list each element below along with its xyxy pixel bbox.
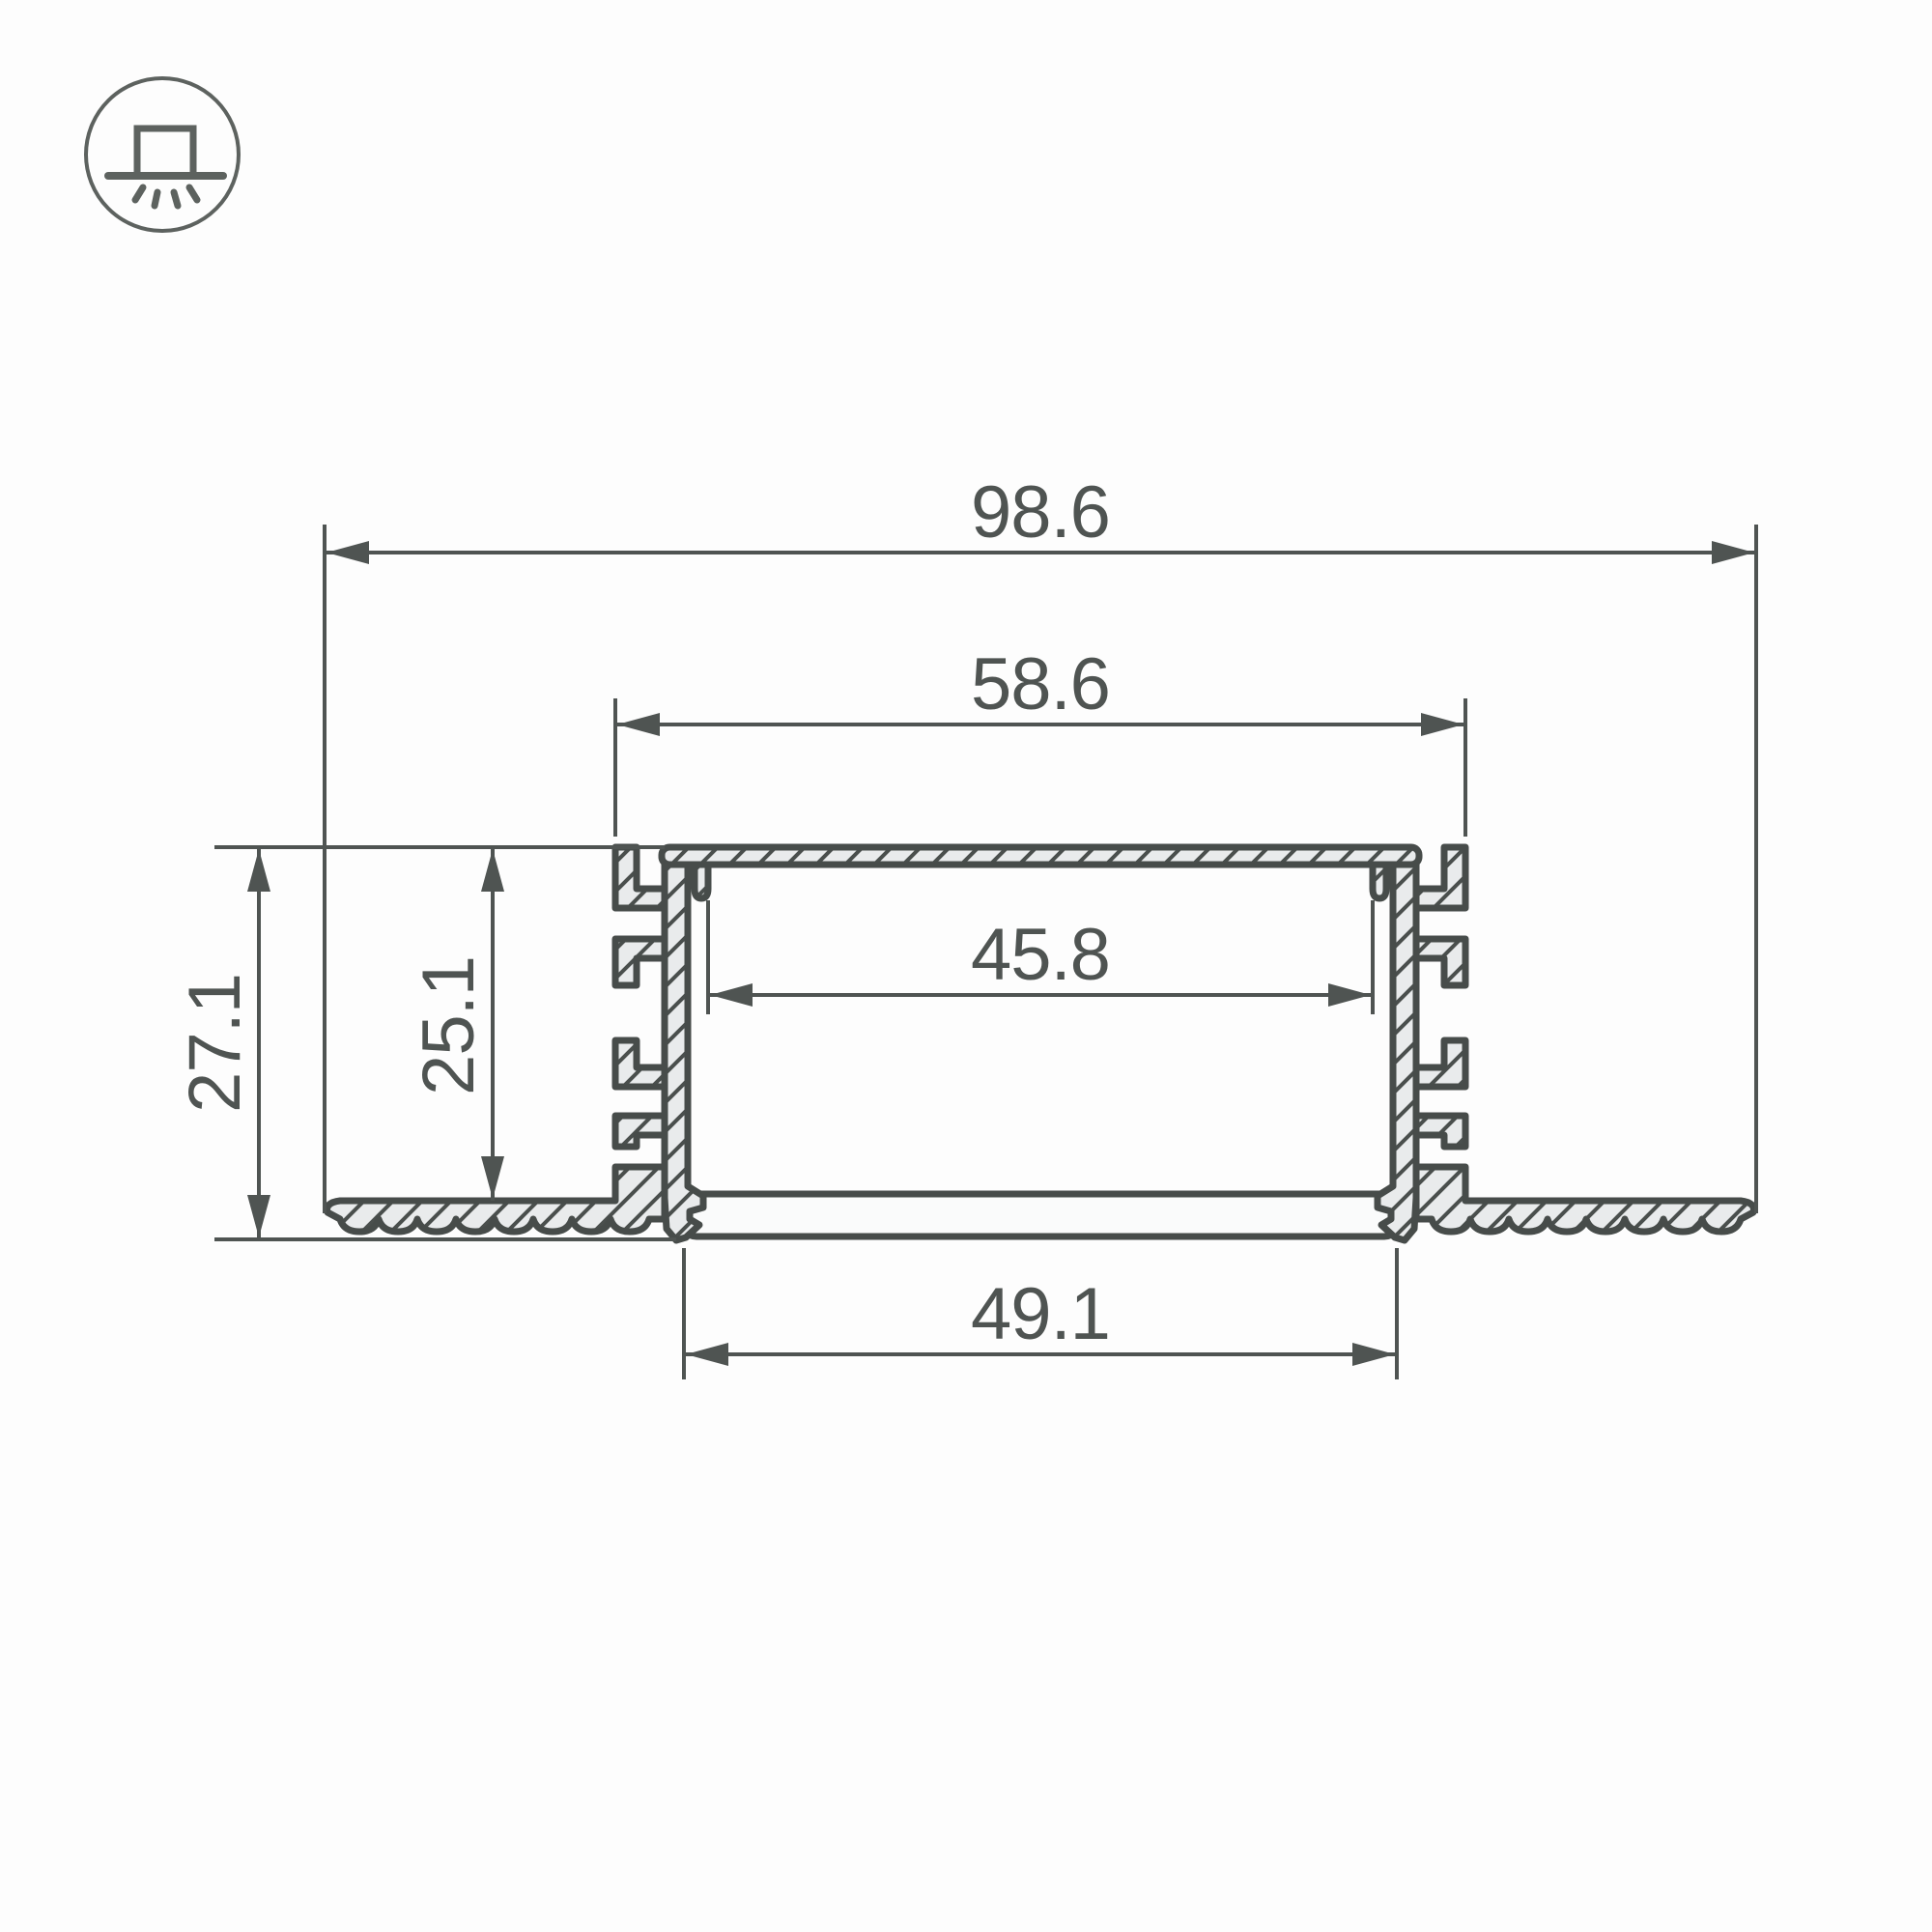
dimension-diffuser-width: 49.1 [684, 1248, 1397, 1379]
icon-circle [86, 78, 239, 231]
profile-body [327, 847, 1754, 1240]
dim-overall-height-value: 27.1 [174, 974, 256, 1113]
icon-light-rays [135, 187, 197, 206]
profile-cross-section-drawing: 98.6 58.6 45.8 49.1 27.1 25.1 [0, 0, 1932, 1932]
dimension-mounting-width: 58.6 [615, 643, 1465, 837]
dimension-recess-depth: 25.1 [408, 847, 504, 1201]
dim-overall-width-value: 98.6 [971, 471, 1110, 554]
dim-inner-width-value: 45.8 [971, 914, 1110, 996]
drawing-page: 98.6 58.6 45.8 49.1 27.1 25.1 [0, 0, 1932, 1932]
dimension-overall-width: 98.6 [325, 471, 1756, 1213]
dimension-inner-width: 45.8 [708, 900, 1373, 1014]
top-plate [662, 847, 1419, 865]
recessed-mount-icon [86, 78, 239, 231]
dim-mounting-width-value: 58.6 [971, 643, 1110, 725]
icon-fixture-box [137, 128, 193, 176]
dim-diffuser-width-value: 49.1 [971, 1273, 1110, 1355]
dim-recess-depth-value: 25.1 [408, 956, 490, 1095]
diffuser-plate [682, 1194, 1399, 1236]
